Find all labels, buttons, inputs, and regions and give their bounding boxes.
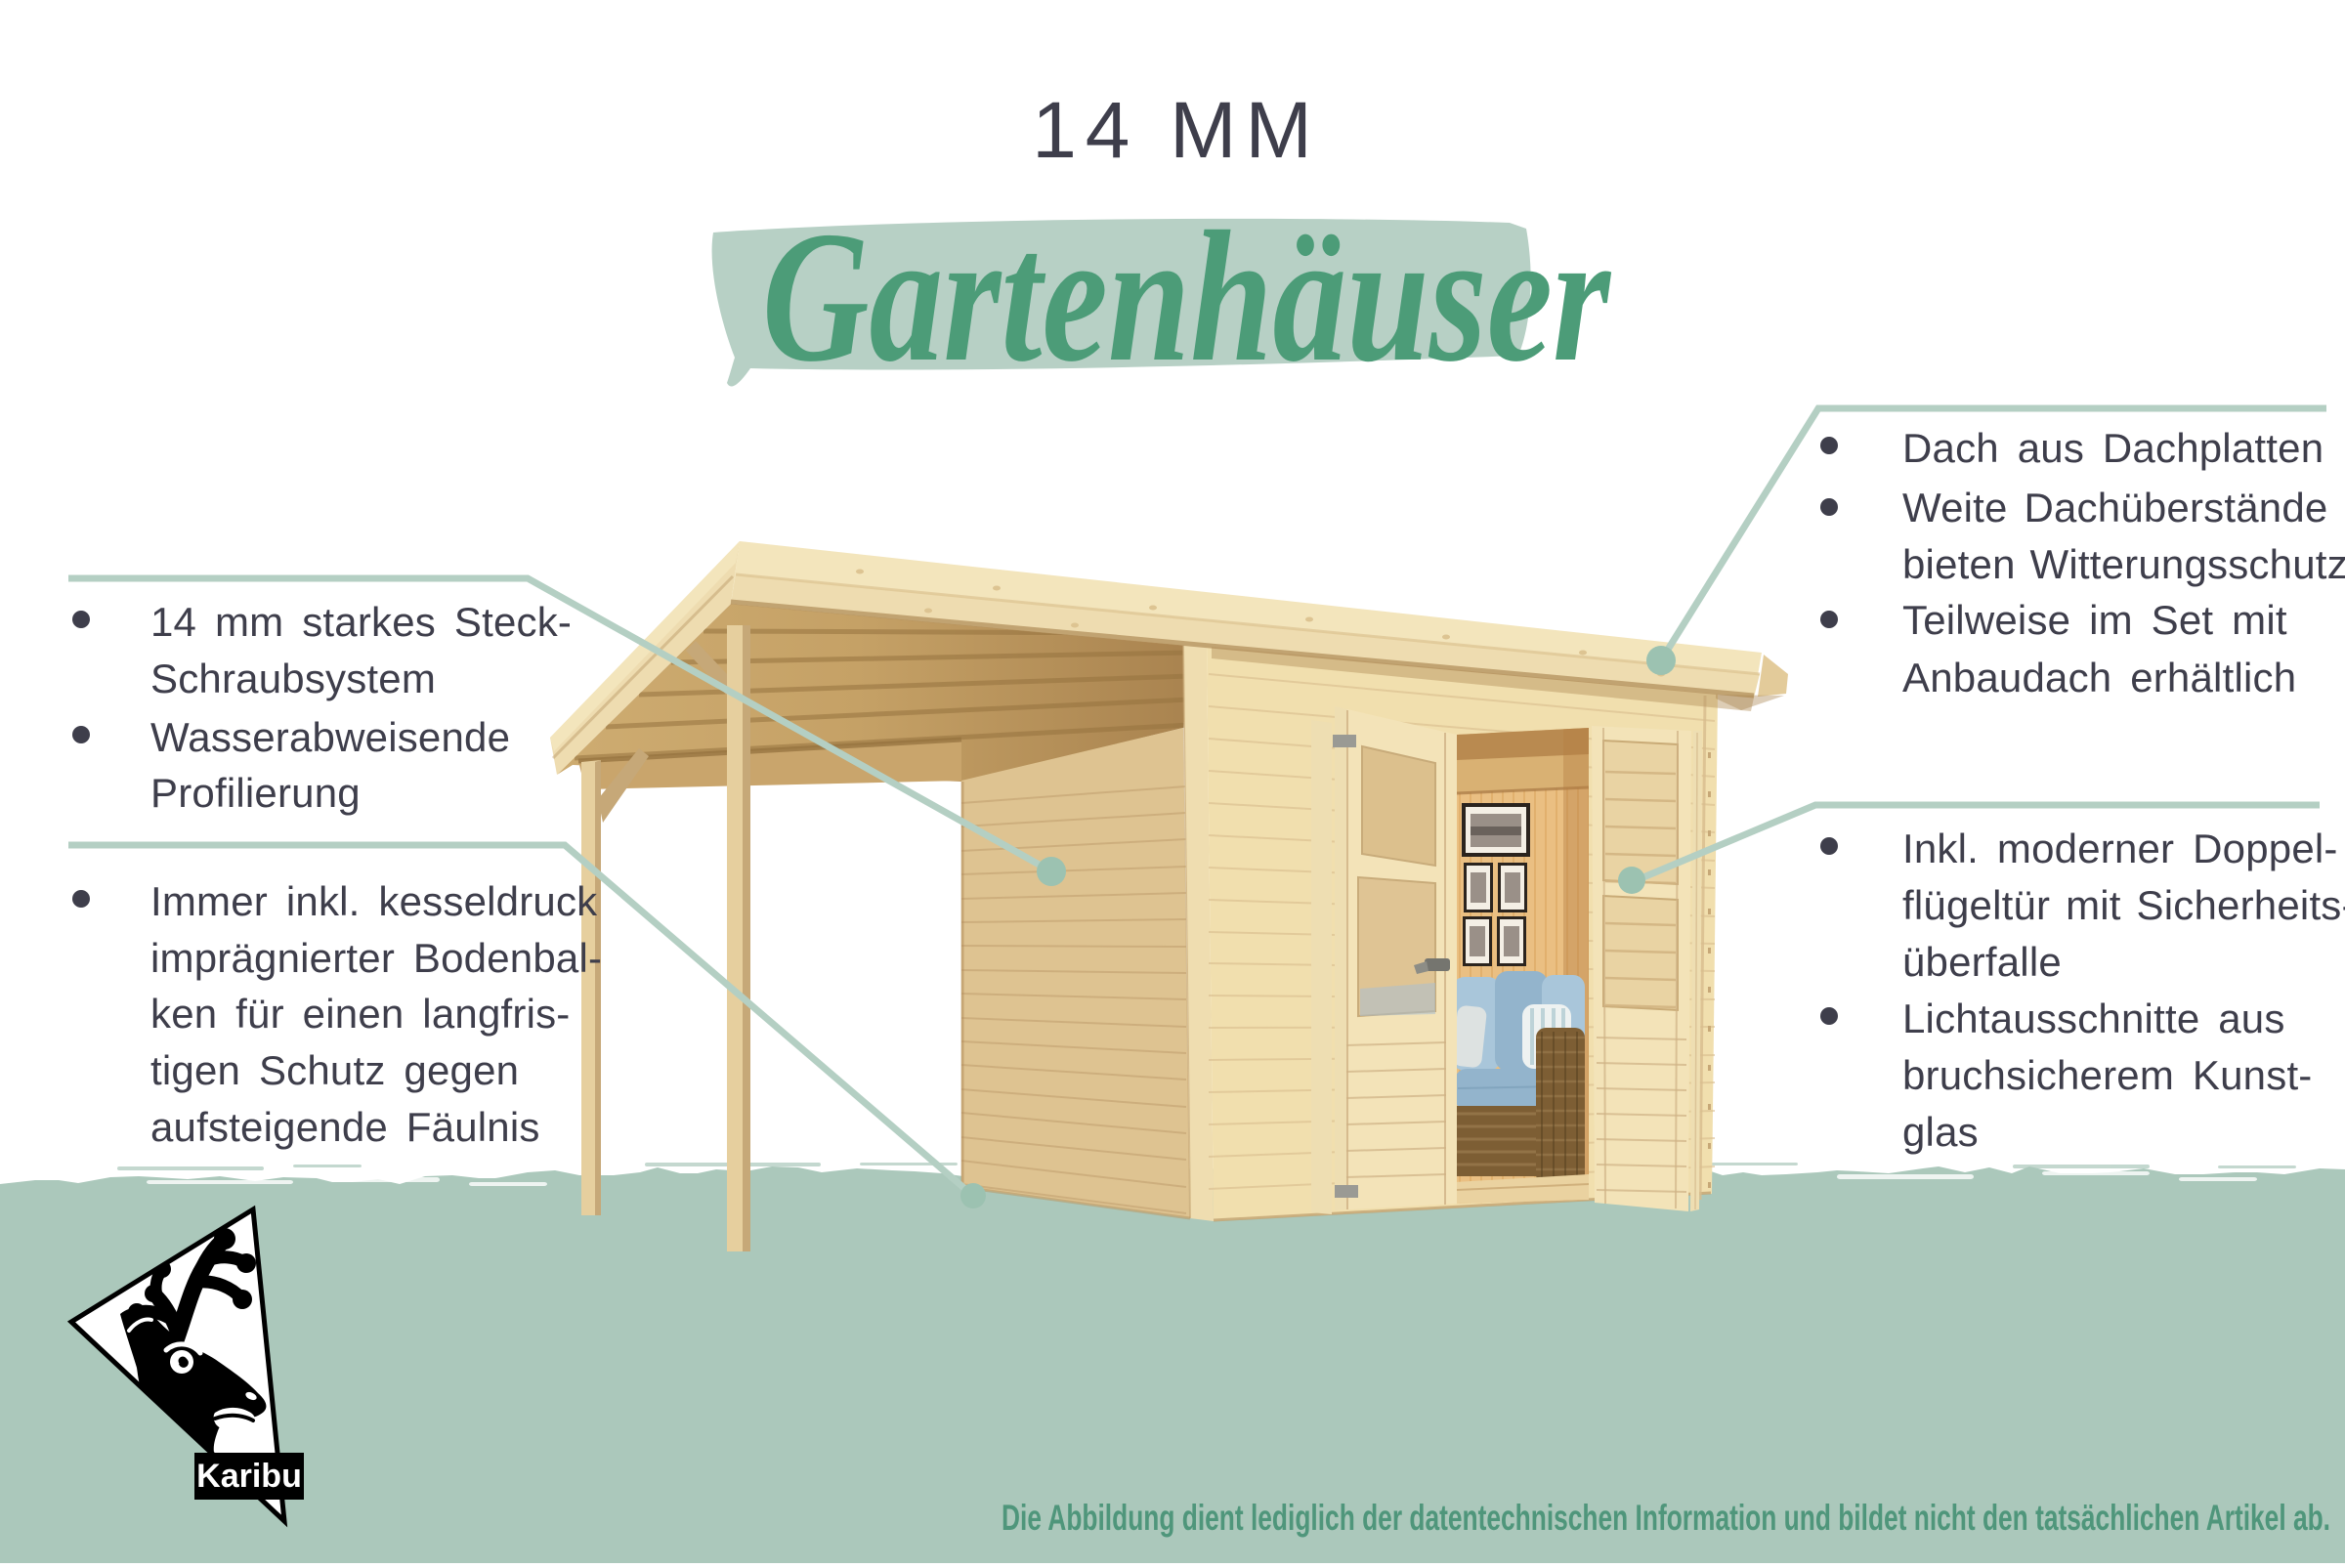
- svg-text:ken für einen langfris-: ken für einen langfris-: [150, 991, 570, 1037]
- svg-text:Wasserabweisende: Wasserabweisende: [150, 714, 510, 760]
- svg-text:überfalle: überfalle: [1902, 939, 2062, 985]
- svg-text:Gartenhäuser: Gartenhäuser: [762, 192, 1612, 401]
- svg-text:bruchsicherem Kunst-: bruchsicherem Kunst-: [1902, 1052, 2313, 1098]
- svg-text:glas: glas: [1902, 1109, 1979, 1155]
- svg-text:Profilierung: Profilierung: [150, 770, 361, 816]
- svg-text:Inkl. moderner Doppel-: Inkl. moderner Doppel-: [1902, 826, 2338, 871]
- svg-text:Dach aus Dachplatten: Dach aus Dachplatten: [1902, 425, 2324, 471]
- svg-text:Immer inkl. kesseldruck: Immer inkl. kesseldruck: [150, 878, 598, 924]
- svg-text:aufsteigende Fäulnis: aufsteigende Fäulnis: [150, 1104, 540, 1150]
- svg-text:imprägnierter Bodenbal-: imprägnierter Bodenbal-: [150, 935, 602, 981]
- svg-text:Schraubsystem: Schraubsystem: [150, 656, 436, 701]
- svg-text:Anbaudach erhältlich: Anbaudach erhältlich: [1902, 655, 2296, 700]
- svg-text:14 mm starkes Steck-: 14 mm starkes Steck-: [150, 599, 572, 645]
- svg-text:bieten Witterungsschutz: bieten Witterungsschutz: [1902, 541, 2345, 587]
- svg-text:14 MM: 14 MM: [1032, 86, 1321, 175]
- svg-text:tigen Schutz gegen: tigen Schutz gegen: [150, 1047, 519, 1093]
- svg-text:Lichtausschnitte aus: Lichtausschnitte aus: [1902, 996, 2285, 1041]
- svg-text:Die Abbildung dient lediglich: Die Abbildung dient lediglich der datent…: [1002, 1498, 2330, 1538]
- svg-text:Weite Dachüberstände: Weite Dachüberstände: [1902, 485, 2327, 530]
- svg-text:flügeltür mit Sicherheits-: flügeltür mit Sicherheits-: [1902, 882, 2345, 928]
- svg-text:Teilweise im Set mit: Teilweise im Set mit: [1902, 597, 2287, 643]
- svg-text:Karibu: Karibu: [196, 1458, 302, 1495]
